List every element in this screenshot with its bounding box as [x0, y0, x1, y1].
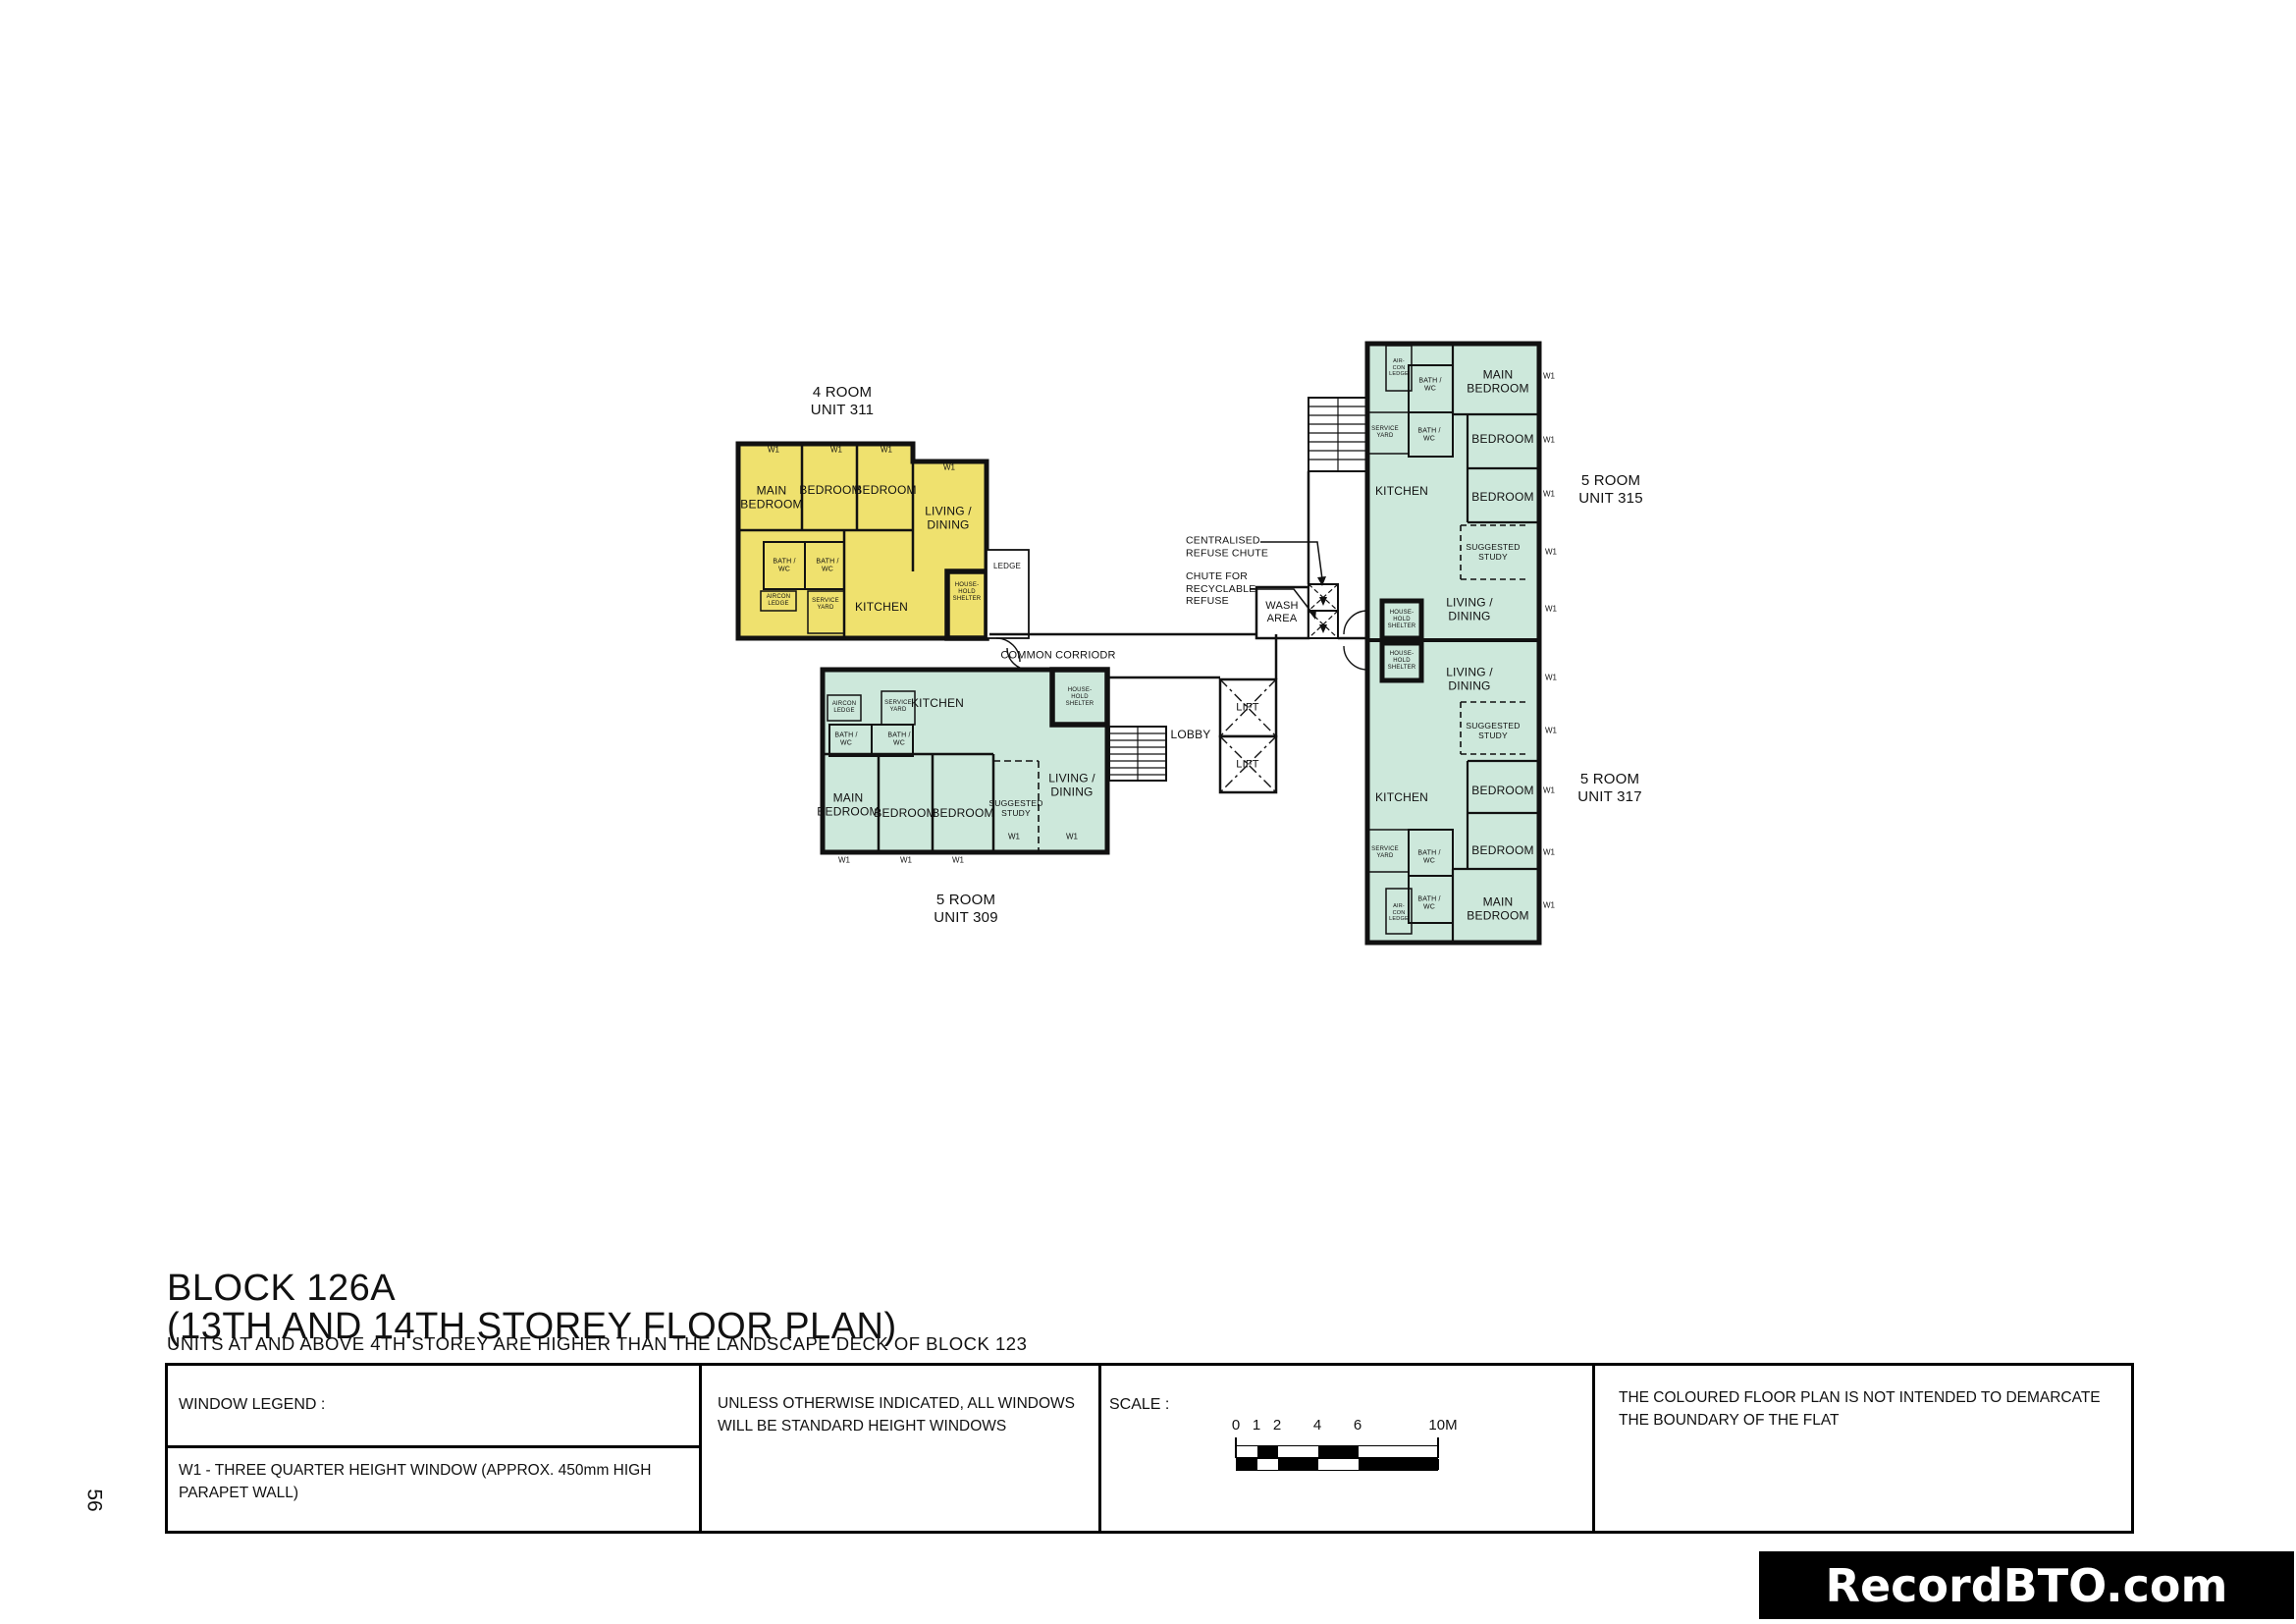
room-label-main-bedroom-309: MAIN BEDROOM	[817, 791, 879, 820]
room-label-suggested-study-317: SUGGESTED STUDY	[1466, 721, 1520, 740]
room-label-bedroom-317a: BEDROOM	[1471, 784, 1533, 797]
lift-label-1: LIFT	[1236, 701, 1258, 714]
room-label-kitchen-309: KITCHEN	[911, 696, 964, 710]
room-label-aircon-ledge-315: AIR- CON LEDGE	[1389, 358, 1409, 378]
watermark-banner: RecordBTO.com	[1759, 1551, 2294, 1619]
page-title-block: BLOCK 126A	[167, 1268, 396, 1310]
room-label-main-bedroom-311: MAIN BEDROOM	[740, 484, 802, 513]
window-legend-body: W1 - THREE QUARTER HEIGHT WINDOW (APPROX…	[179, 1459, 669, 1505]
room-label-bath-wc-311b: BATH / WC	[816, 559, 838, 575]
room-label-household-shelter-315: HOUSE- HOLD SHELTER	[1388, 610, 1416, 631]
table-divider-2	[1098, 1366, 1101, 1531]
lift-label-2: LIFT	[1236, 758, 1258, 771]
window-mark-w1: W1	[768, 446, 779, 455]
window-mark-w1: W1	[830, 446, 842, 455]
window-mark-w1: W1	[1543, 901, 1555, 910]
lobby-label: LOBBY	[1170, 728, 1210, 741]
room-label-bath-wc-315b: BATH / WC	[1417, 428, 1440, 445]
room-label-living-dining-311: LIVING / DINING	[925, 505, 972, 533]
unit-311-title: 4 ROOM UNIT 311	[811, 384, 874, 419]
common-corridor-label: COMMON CORRIODR	[1000, 649, 1115, 662]
page-number: 56	[82, 1489, 106, 1511]
room-label-bath-wc-317a: BATH / WC	[1417, 850, 1440, 867]
scale-tick-10m: 10M	[1428, 1417, 1457, 1434]
page-title-note: UNITS AT AND ABOVE 4TH STOREY ARE HIGHER…	[167, 1333, 1027, 1355]
window-mark-w1: W1	[1543, 436, 1555, 445]
room-label-bedroom-309b: BEDROOM	[932, 806, 993, 820]
room-label-bath-wc-309a: BATH / WC	[834, 732, 857, 749]
window-mark-w1: W1	[1545, 605, 1557, 614]
room-label-bath-wc-317b: BATH / WC	[1417, 896, 1440, 913]
room-label-bedroom-315b: BEDROOM	[1471, 490, 1533, 504]
window-mark-w1: W1	[1545, 548, 1557, 557]
floor-plan-page: 4 ROOM UNIT 311 MAIN BEDROOM BEDROOM BED…	[0, 0, 2296, 1624]
window-legend-row-divider	[168, 1445, 699, 1448]
standard-windows-note: UNLESS OTHERWISE INDICATED, ALL WINDOWS …	[718, 1392, 1091, 1438]
table-divider-3	[1592, 1366, 1595, 1531]
room-label-main-bedroom-317: MAIN BEDROOM	[1467, 895, 1528, 924]
room-label-household-shelter-311: HOUSE- HOLD SHELTER	[953, 582, 982, 604]
unit-309-title: 5 ROOM UNIT 309	[934, 892, 998, 927]
window-legend-header: WINDOW LEGEND :	[179, 1396, 325, 1414]
room-label-kitchen-317: KITCHEN	[1375, 790, 1428, 804]
room-label-bedroom-311b: BEDROOM	[854, 483, 916, 497]
room-label-ledge-311: LEDGE	[993, 562, 1021, 571]
scale-header: SCALE :	[1109, 1396, 1169, 1414]
unit-315-title: 5 ROOM UNIT 315	[1578, 472, 1643, 508]
recyclable-refuse-chute-label: CHUTE FOR RECYCLABLE REFUSE	[1186, 570, 1255, 608]
room-label-bedroom-309a: BEDROOM	[874, 806, 935, 820]
table-divider-1	[699, 1366, 702, 1531]
window-mark-w1: W1	[1545, 727, 1557, 735]
room-label-service-yard-309: SERVICE YARD	[884, 700, 912, 714]
room-label-bedroom-317b: BEDROOM	[1471, 843, 1533, 857]
room-label-main-bedroom-315: MAIN BEDROOM	[1467, 368, 1528, 397]
window-mark-w1: W1	[900, 856, 912, 865]
window-mark-w1: W1	[1543, 786, 1555, 795]
room-label-suggested-study-315: SUGGESTED STUDY	[1466, 542, 1520, 562]
window-mark-w1: W1	[1066, 833, 1078, 841]
room-label-kitchen-311: KITCHEN	[855, 600, 908, 614]
room-label-bath-wc-315a: BATH / WC	[1418, 378, 1441, 395]
window-mark-w1: W1	[1543, 848, 1555, 857]
wash-area-label: WASH AREA	[1265, 600, 1298, 625]
room-label-service-yard-315: SERVICE YARD	[1371, 426, 1399, 440]
room-label-household-shelter-309: HOUSE- HOLD SHELTER	[1066, 687, 1095, 709]
room-label-bedroom-311a: BEDROOM	[799, 483, 861, 497]
room-label-service-yard-317: SERVICE YARD	[1371, 846, 1399, 860]
unit-317-title: 5 ROOM UNIT 317	[1577, 771, 1642, 806]
scale-tick-4: 4	[1313, 1417, 1321, 1434]
window-mark-w1: W1	[943, 463, 955, 472]
scale-tick-6: 6	[1354, 1417, 1362, 1434]
room-label-aircon-ledge-317: AIR- CON LEDGE	[1389, 903, 1409, 923]
window-mark-w1: W1	[1008, 833, 1020, 841]
window-mark-w1: W1	[952, 856, 964, 865]
room-label-bedroom-315a: BEDROOM	[1471, 432, 1533, 446]
scale-bar-top-row	[1236, 1445, 1438, 1458]
scale-tick-0: 0	[1232, 1417, 1240, 1434]
scale-bar-bottom-row	[1236, 1458, 1438, 1471]
room-label-household-shelter-317: HOUSE- HOLD SHELTER	[1388, 651, 1416, 673]
room-label-living-dining-317: LIVING / DINING	[1446, 666, 1493, 694]
boundary-note: THE COLOURED FLOOR PLAN IS NOT INTENDED …	[1619, 1386, 2105, 1433]
window-mark-w1: W1	[1543, 490, 1555, 499]
scale-bar	[1236, 1445, 1438, 1471]
window-mark-w1: W1	[881, 446, 892, 455]
watermark-text: RecordBTO.com	[1826, 1559, 2228, 1612]
window-mark-w1: W1	[838, 856, 850, 865]
room-label-bath-wc-311a: BATH / WC	[773, 559, 795, 575]
room-label-living-dining-315: LIVING / DINING	[1446, 596, 1493, 624]
room-label-kitchen-315: KITCHEN	[1375, 484, 1428, 498]
scale-tick-2: 2	[1273, 1417, 1281, 1434]
room-label-bath-wc-309b: BATH / WC	[887, 732, 910, 749]
room-label-suggested-study-309: SUGGESTED STUDY	[988, 798, 1042, 818]
scale-tick-1: 1	[1253, 1417, 1260, 1434]
room-label-aircon-ledge-311: AIRCON LEDGE	[767, 594, 791, 608]
window-mark-w1: W1	[1545, 674, 1557, 682]
window-mark-w1: W1	[1543, 372, 1555, 381]
room-label-living-dining-309: LIVING / DINING	[1048, 772, 1095, 800]
room-label-service-yard-311: SERVICE YARD	[812, 598, 839, 612]
centralised-refuse-chute-label: CENTRALISED REFUSE CHUTE	[1186, 534, 1268, 559]
room-label-aircon-ledge-309: AIRCON LEDGE	[832, 701, 857, 715]
